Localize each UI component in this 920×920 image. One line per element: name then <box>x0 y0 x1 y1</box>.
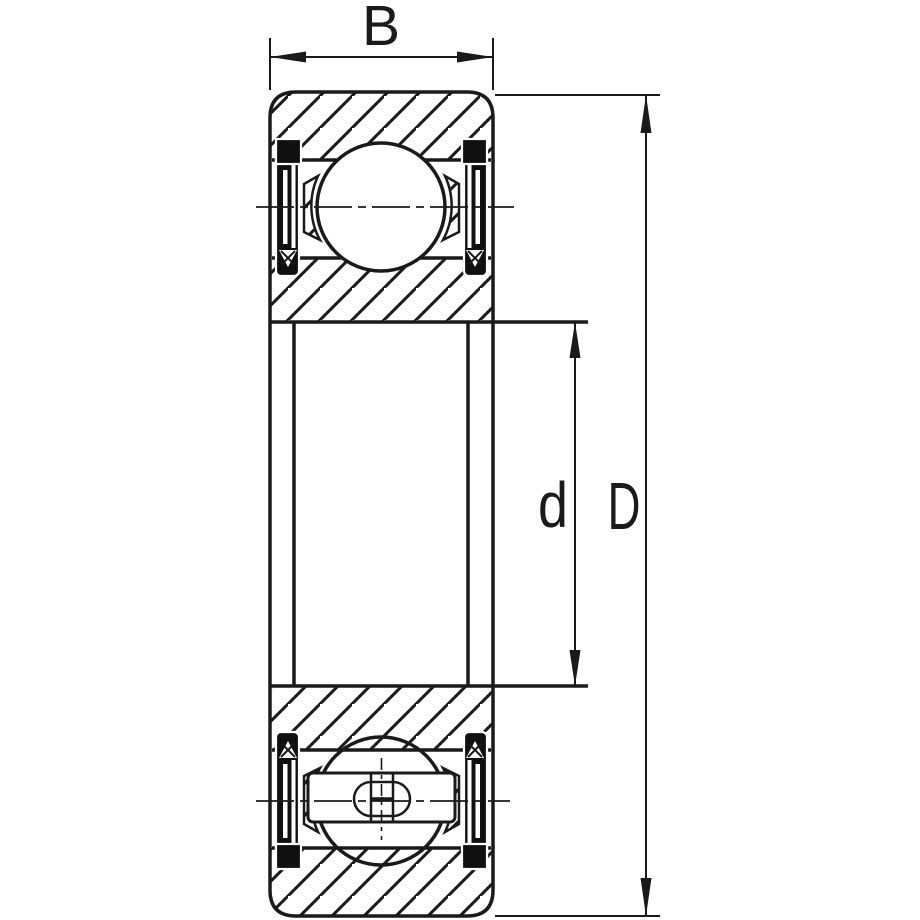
width-label: B <box>362 0 400 58</box>
bearing-bottom-section <box>256 686 510 916</box>
dimension-b: B <box>270 0 493 90</box>
inner-ring-band-bottom <box>270 686 493 750</box>
arrowhead-up-icon <box>641 95 652 133</box>
dimension-d: d <box>538 322 581 686</box>
arrowhead-left-icon <box>270 52 306 63</box>
bearing-drawing-page: B d D <box>0 0 920 920</box>
arrowhead-right-icon <box>457 52 493 63</box>
arrowhead-down-icon <box>570 650 581 686</box>
bearing-cross-section-drawing: B d D <box>0 0 920 920</box>
bearing-top-section <box>256 92 514 322</box>
arrowhead-down-icon <box>641 878 652 916</box>
outer-ring-band-bottom <box>270 848 493 916</box>
dimension-D: D <box>495 95 660 916</box>
bore-diameter-label: d <box>538 469 568 541</box>
arrowhead-up-icon <box>570 322 581 358</box>
outer-diameter-label: D <box>608 469 641 544</box>
